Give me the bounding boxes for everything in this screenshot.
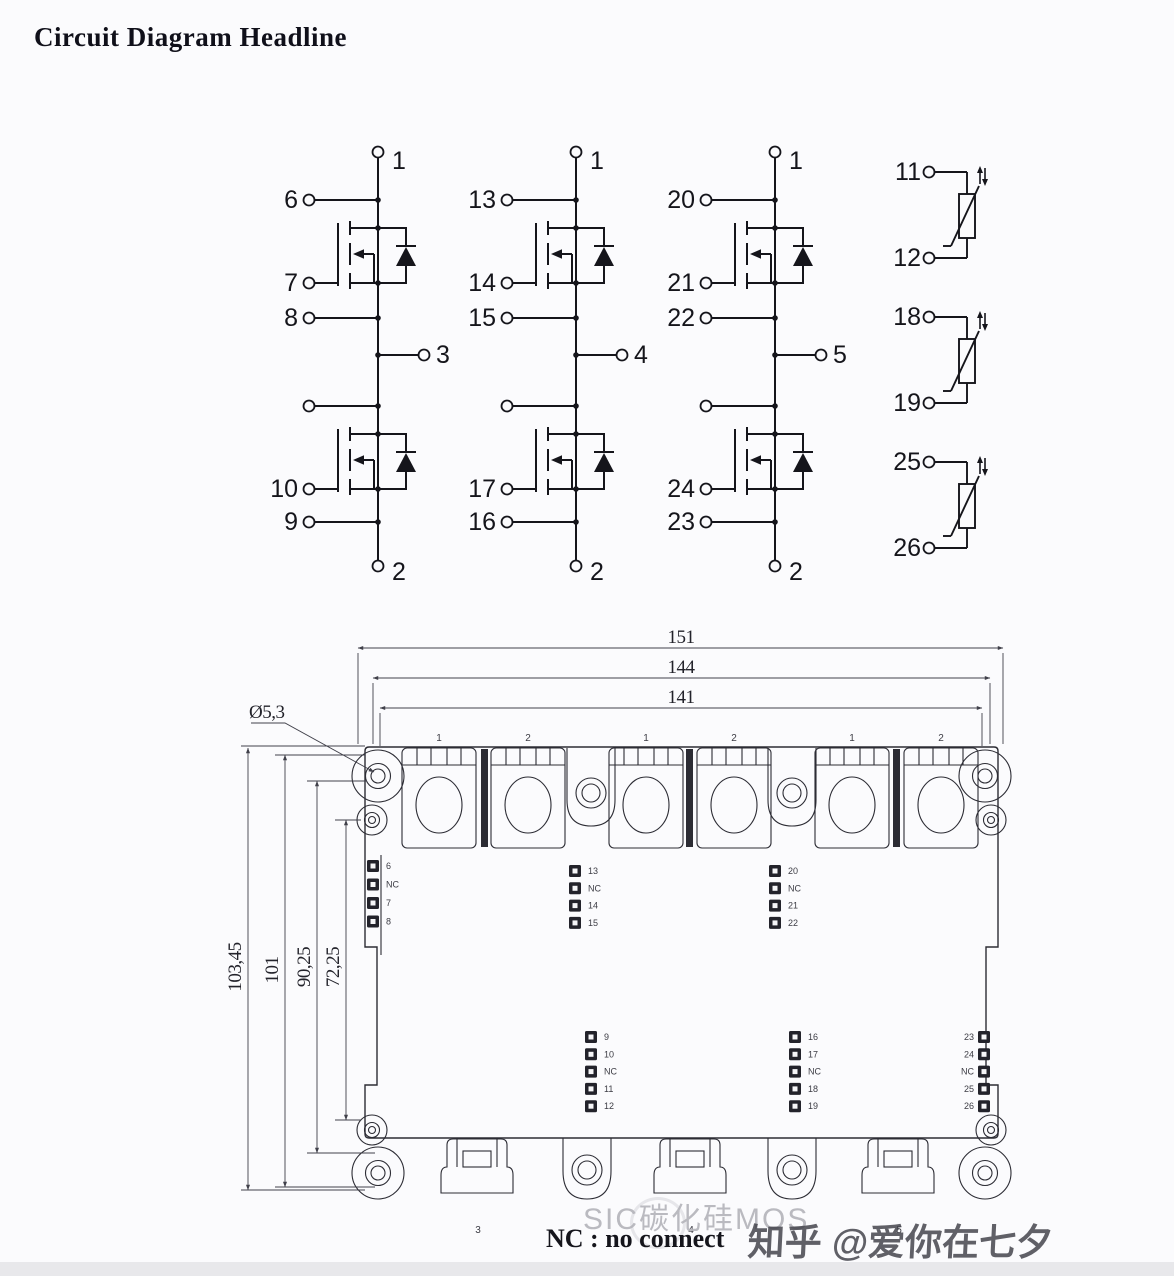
- thermistor-circuit-1: 11 12: [880, 160, 1020, 272]
- pin-number: 20: [667, 186, 695, 214]
- top-terminal-block: 1: [402, 733, 476, 848]
- pin-label: 8: [386, 917, 391, 927]
- watermark-credit-text: 知乎 @爱你在七夕: [747, 1212, 1055, 1266]
- terminal-number: 2: [938, 733, 944, 744]
- pin-number: 1: [789, 147, 803, 175]
- pin-number: 26: [893, 534, 921, 562]
- mounting-holes: [352, 750, 1011, 1199]
- dim-hole-diameter: Ø5,3: [249, 702, 284, 723]
- pin-label: 24: [964, 1049, 974, 1059]
- pin-number: 15: [468, 304, 496, 332]
- pin-label: 9: [604, 1032, 609, 1042]
- pin-label: 18: [808, 1084, 818, 1094]
- bottom-u-tabs: [563, 1138, 816, 1199]
- package-outline-drawing: 151 144 141 103,45 101 90,25 72,25: [215, 615, 1015, 1235]
- pin-label: 23: [964, 1032, 974, 1042]
- bottom-terminal-block: 3: [441, 1139, 513, 1235]
- half-bridge-circuit-3: 1 20 21 22 5 24 23 2: [667, 138, 877, 593]
- pin-number: 10: [270, 475, 298, 503]
- pin-number: 2: [590, 558, 604, 586]
- top-terminal-block: 1: [815, 733, 889, 848]
- pin-group-right_top: 20NC2122: [769, 865, 801, 929]
- pin-number: 14: [468, 269, 496, 297]
- pin-number: 3: [436, 341, 450, 369]
- pin-label: 21: [788, 901, 798, 911]
- half-bridge-schematic: 1 6 7 8 3 10 9 2: [270, 138, 480, 593]
- pin-number: 7: [284, 269, 298, 297]
- pin-label: 7: [386, 898, 391, 908]
- module-body-outline: [365, 747, 998, 1138]
- nc-note: NC : no connect: [546, 1224, 724, 1254]
- pin-number: 8: [284, 304, 298, 332]
- pin-number: 17: [468, 475, 496, 503]
- page: Circuit Diagram Headline 1 6 7 8 3 10 9 …: [0, 0, 1174, 1276]
- bottom-strip: [0, 1262, 1174, 1276]
- pin-label: 20: [788, 866, 798, 876]
- dim-height-outer: 103,45: [225, 942, 246, 991]
- pin-label: 16: [808, 1032, 818, 1042]
- terminal-number: 2: [731, 733, 737, 744]
- thermistor-circuit-2: 18 19: [880, 305, 1020, 417]
- dim-height-mid: 101: [262, 957, 283, 984]
- pin-number: 23: [667, 508, 695, 536]
- pin-group-mid_bottom: 1617NC1819: [789, 1031, 821, 1112]
- pin-label: 17: [808, 1049, 818, 1059]
- terminal-number: 1: [849, 733, 855, 744]
- top-terminal-block: 1: [609, 733, 683, 848]
- pin-number: 1: [392, 147, 406, 175]
- dim-width-outer: 151: [668, 627, 695, 648]
- ntc-thermistor-symbol: 25 26: [880, 450, 1020, 562]
- terminal-number: 3: [475, 1225, 481, 1235]
- half-bridge-circuit-1: 1 6 7 8 3 10 9 2: [270, 138, 480, 593]
- pin-number: 16: [468, 508, 496, 536]
- pin-label: 6: [386, 861, 391, 871]
- top-terminal-block: 2: [904, 733, 978, 848]
- pin-number: 22: [667, 304, 695, 332]
- pin-number: 2: [392, 558, 406, 586]
- pin-number: 1: [590, 147, 604, 175]
- half-bridge-circuit-2: 1 13 14 15 4 17 16 2: [468, 138, 678, 593]
- terminal-number: 1: [436, 733, 442, 744]
- ntc-thermistor-symbol: 11 12: [880, 160, 1020, 272]
- pin-number: 6: [284, 186, 298, 214]
- pin-label: 25: [964, 1084, 974, 1094]
- pin-label: 26: [964, 1101, 974, 1111]
- pin-label: 15: [588, 918, 598, 928]
- width-dimensions: 151 144 141: [358, 627, 1003, 746]
- pin-label: 12: [604, 1101, 614, 1111]
- pin-number: 12: [893, 244, 921, 272]
- pin-number: 18: [893, 305, 921, 331]
- pin-number: 9: [284, 508, 298, 536]
- package-drawing: 151 144 141 103,45 101 90,25 72,25: [215, 615, 1015, 1235]
- pin-number: 5: [833, 341, 847, 369]
- pin-number: 11: [895, 160, 921, 186]
- pin-number: 19: [893, 389, 921, 417]
- pin-label: 11: [604, 1084, 613, 1094]
- ntc-thermistor-symbol: 18 19: [880, 305, 1020, 417]
- pin-number: 13: [468, 186, 496, 214]
- pin-label: 13: [588, 866, 598, 876]
- thermistor-circuit-3: 25 26: [880, 450, 1020, 562]
- pin-group-mid_top: 13NC1415: [569, 865, 601, 929]
- pin-label: NC: [961, 1067, 974, 1077]
- dim-height-inner2: 72,25: [323, 947, 344, 987]
- pin-label: NC: [788, 883, 801, 893]
- terminal-separators: [481, 749, 900, 847]
- dim-height-inner: 90,25: [294, 947, 315, 987]
- dim-width-mid: 144: [668, 657, 696, 678]
- page-title: Circuit Diagram Headline: [34, 22, 347, 53]
- pin-number: 2: [789, 558, 803, 586]
- height-dimensions: 103,45 101 90,25 72,25: [225, 746, 375, 1190]
- half-bridge-schematic: 1 20 21 22 5 24 23 2: [667, 138, 877, 593]
- pin-number: 25: [893, 450, 921, 476]
- pin-label: NC: [588, 883, 601, 893]
- pin-label: NC: [604, 1067, 617, 1077]
- pin-label: 19: [808, 1101, 818, 1111]
- pin-number: 4: [634, 341, 648, 369]
- pin-number: 24: [667, 475, 695, 503]
- pin-label: 22: [788, 918, 798, 928]
- pin-label: NC: [808, 1067, 821, 1077]
- top-terminal-block: 2: [491, 733, 565, 848]
- pin-group-left_bottom: 910NC1112: [585, 1031, 617, 1112]
- terminal-number: 2: [525, 733, 531, 744]
- pin-number: 21: [667, 269, 695, 297]
- dim-width-inner: 141: [668, 687, 695, 708]
- hole-dimension: Ø5,3: [249, 702, 374, 772]
- pin-group-left_top: 6NC78: [367, 860, 399, 928]
- half-bridge-schematic: 1 13 14 15 4 17 16 2: [468, 138, 678, 593]
- pin-label: 14: [588, 901, 598, 911]
- pin-label: NC: [386, 880, 399, 890]
- top-terminal-block: 2: [697, 733, 771, 848]
- terminal-number: 1: [643, 733, 649, 744]
- pin-label: 10: [604, 1049, 614, 1059]
